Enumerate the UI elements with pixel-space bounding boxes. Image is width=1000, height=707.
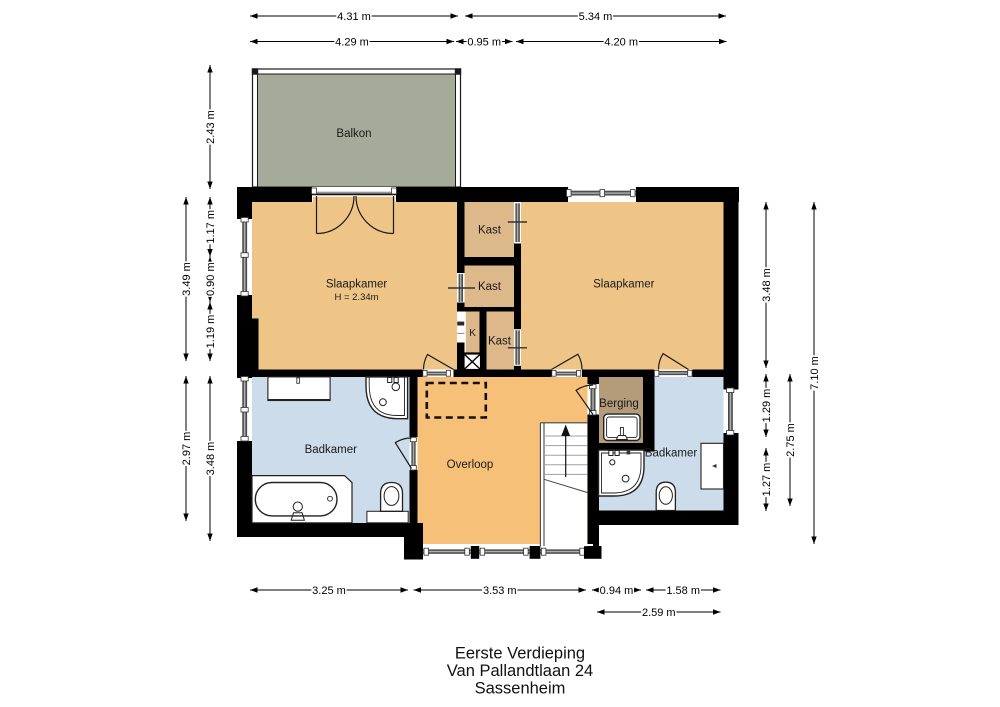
svg-text:5.34 m: 5.34 m xyxy=(579,11,613,23)
svg-text:2.59 m: 2.59 m xyxy=(642,607,676,619)
svg-text:Eerste Verdieping: Eerste Verdieping xyxy=(455,645,585,663)
svg-text:Kast: Kast xyxy=(488,336,512,348)
svg-text:Slaapkamer: Slaapkamer xyxy=(593,279,655,291)
svg-text:7.10 m: 7.10 m xyxy=(809,356,821,390)
svg-text:Kast: Kast xyxy=(478,281,502,293)
svg-text:4.20 m: 4.20 m xyxy=(604,36,638,48)
svg-text:2.97 m: 2.97 m xyxy=(181,432,193,466)
svg-text:Badkamer: Badkamer xyxy=(645,447,698,459)
svg-text:3.25 m: 3.25 m xyxy=(312,585,346,597)
svg-text:2.75 m: 2.75 m xyxy=(785,423,797,457)
svg-text:3.53 m: 3.53 m xyxy=(483,585,517,597)
svg-text:1.58 m: 1.58 m xyxy=(666,585,700,597)
svg-text:Sassenheim: Sassenheim xyxy=(475,680,566,698)
svg-text:Overloop: Overloop xyxy=(447,459,494,471)
svg-text:0.95 m: 0.95 m xyxy=(467,36,501,48)
svg-text:4.29 m: 4.29 m xyxy=(335,36,369,48)
svg-text:0.94 m: 0.94 m xyxy=(600,585,634,597)
svg-text:Badkamer: Badkamer xyxy=(305,444,358,456)
svg-text:1.29 m: 1.29 m xyxy=(761,389,773,423)
svg-text:3.49 m: 3.49 m xyxy=(181,262,193,296)
svg-text:Van Pallandtlaan 24: Van Pallandtlaan 24 xyxy=(447,662,593,680)
svg-text:Kast: Kast xyxy=(478,224,502,236)
svg-text:3.48 m: 3.48 m xyxy=(761,268,773,302)
svg-text:Berging: Berging xyxy=(599,398,639,410)
svg-text:1.17 m: 1.17 m xyxy=(205,210,217,244)
svg-text:1.19 m: 1.19 m xyxy=(205,315,217,349)
svg-text:Slaapkamer: Slaapkamer xyxy=(326,279,388,291)
svg-text:0.90 m: 0.90 m xyxy=(205,262,217,296)
svg-text:2.43 m: 2.43 m xyxy=(205,110,217,144)
svg-text:Balkon: Balkon xyxy=(336,128,371,140)
svg-text:4.31 m: 4.31 m xyxy=(337,11,371,23)
svg-text:3.48 m: 3.48 m xyxy=(205,442,217,476)
svg-text:1.27 m: 1.27 m xyxy=(761,463,773,497)
svg-text:K: K xyxy=(469,328,476,339)
svg-text:H = 2.34m: H = 2.34m xyxy=(334,292,378,303)
